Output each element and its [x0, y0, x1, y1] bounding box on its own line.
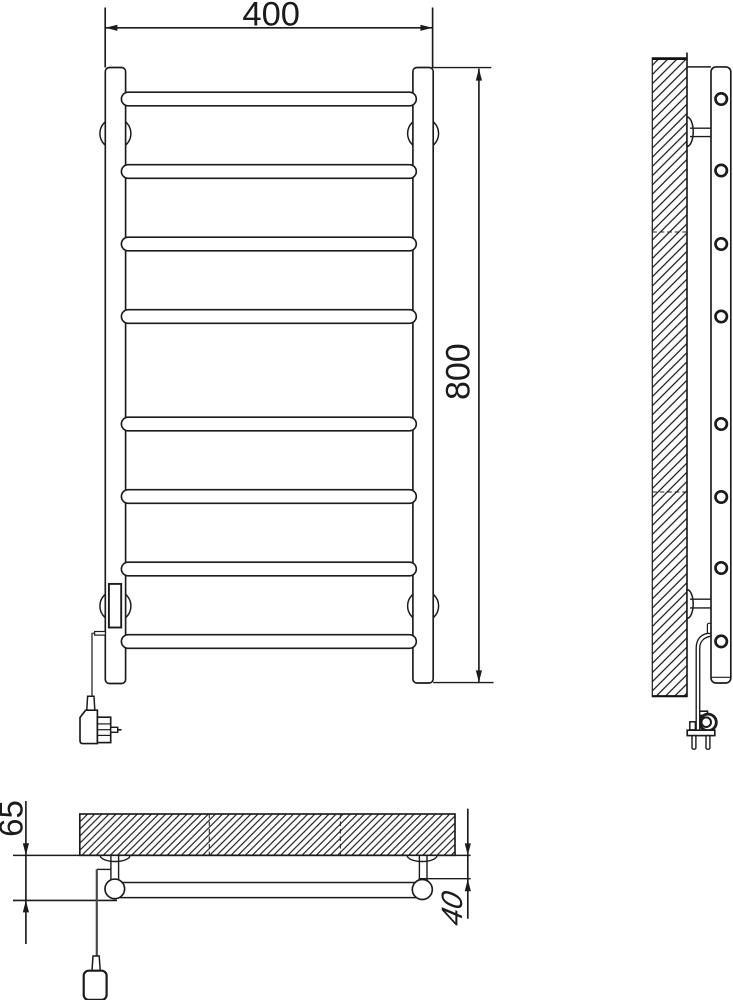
svg-text:400: 400 — [242, 0, 300, 34]
svg-text:800: 800 — [440, 343, 478, 400]
svg-text:65: 65 — [0, 800, 29, 837]
